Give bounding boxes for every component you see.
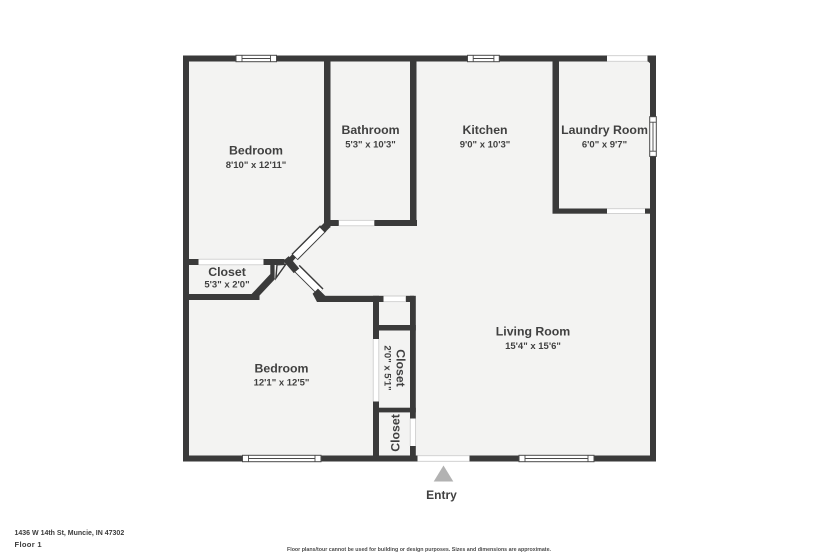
svg-text:5'3" x 10'3": 5'3" x 10'3"	[345, 140, 396, 151]
svg-text:Closet: Closet	[389, 414, 403, 452]
svg-text:Entry: Entry	[426, 488, 457, 502]
svg-text:1436 W 14th St, Muncie, IN 473: 1436 W 14th St, Muncie, IN 47302	[15, 530, 125, 537]
svg-text:6'0" x 9'7": 6'0" x 9'7"	[582, 140, 627, 151]
svg-text:Closet: Closet	[208, 265, 246, 279]
svg-text:Floor 1: Floor 1	[15, 540, 43, 549]
svg-text:15'4" x 15'6": 15'4" x 15'6"	[505, 341, 561, 352]
svg-text:Bedroom: Bedroom	[255, 362, 309, 376]
svg-text:2'0" x 5'1": 2'0" x 5'1"	[381, 345, 392, 390]
svg-text:9'0" x 10'3": 9'0" x 10'3"	[460, 140, 511, 151]
svg-text:Closet: Closet	[393, 349, 407, 387]
svg-text:Bathroom: Bathroom	[341, 123, 399, 137]
svg-text:8'10" x 12'11": 8'10" x 12'11"	[226, 160, 287, 171]
svg-text:Living Room: Living Room	[496, 325, 571, 339]
svg-text:Bedroom: Bedroom	[229, 144, 283, 158]
svg-text:Laundry Room: Laundry Room	[561, 123, 648, 137]
svg-text:12'1" x 12'5": 12'1" x 12'5"	[254, 378, 310, 389]
svg-text:Kitchen: Kitchen	[462, 123, 507, 137]
svg-text:Floor plans/tour cannot be use: Floor plans/tour cannot be used for buil…	[287, 547, 552, 553]
svg-text:5'3" x 2'0": 5'3" x 2'0"	[204, 280, 249, 291]
